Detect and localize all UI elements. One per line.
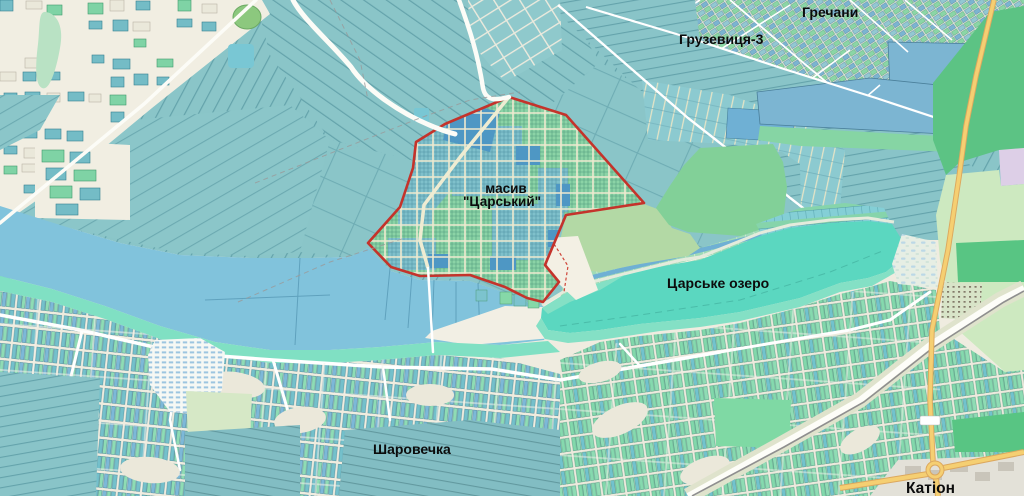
svg-text:Грузевиця-3: Грузевиця-3 — [679, 31, 764, 47]
svg-text:Шаровечка: Шаровечка — [373, 441, 451, 457]
svg-text:Царське озеро: Царське озеро — [667, 275, 769, 291]
svg-text:"Царський": "Царський" — [463, 194, 541, 209]
svg-text:Гречани: Гречани — [802, 4, 858, 20]
svg-text:Катіон: Катіон — [906, 480, 955, 496]
